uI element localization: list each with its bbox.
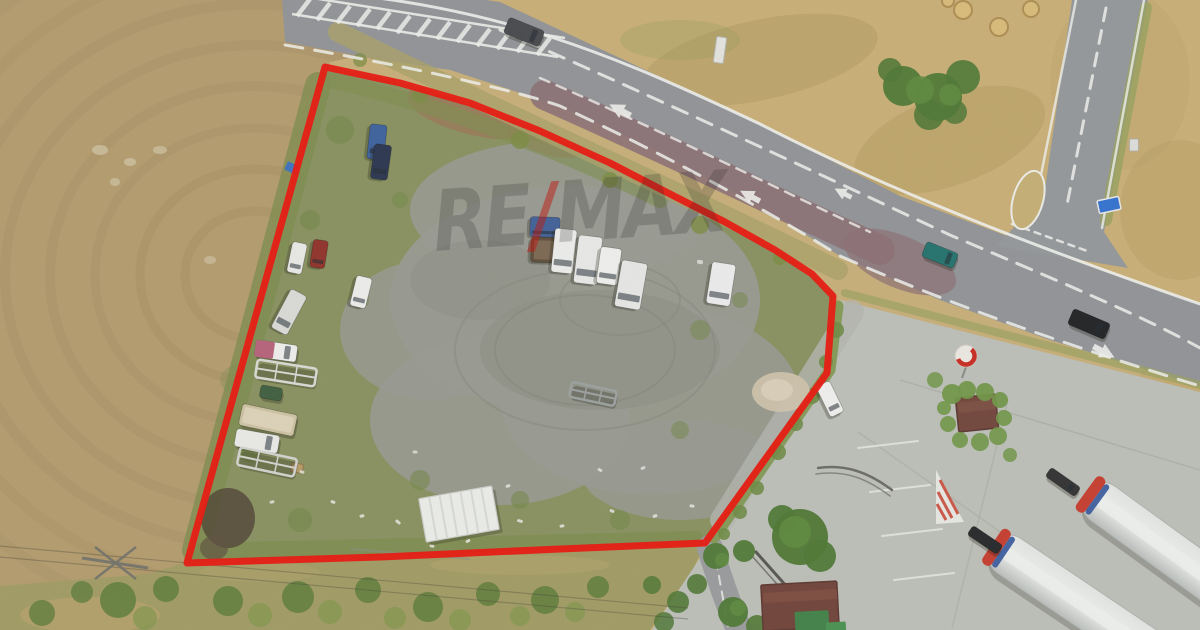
aerial-property-photo: RE/MAX (0, 0, 1200, 630)
aerial-scene (0, 0, 1200, 630)
photo-grain (0, 0, 1200, 630)
